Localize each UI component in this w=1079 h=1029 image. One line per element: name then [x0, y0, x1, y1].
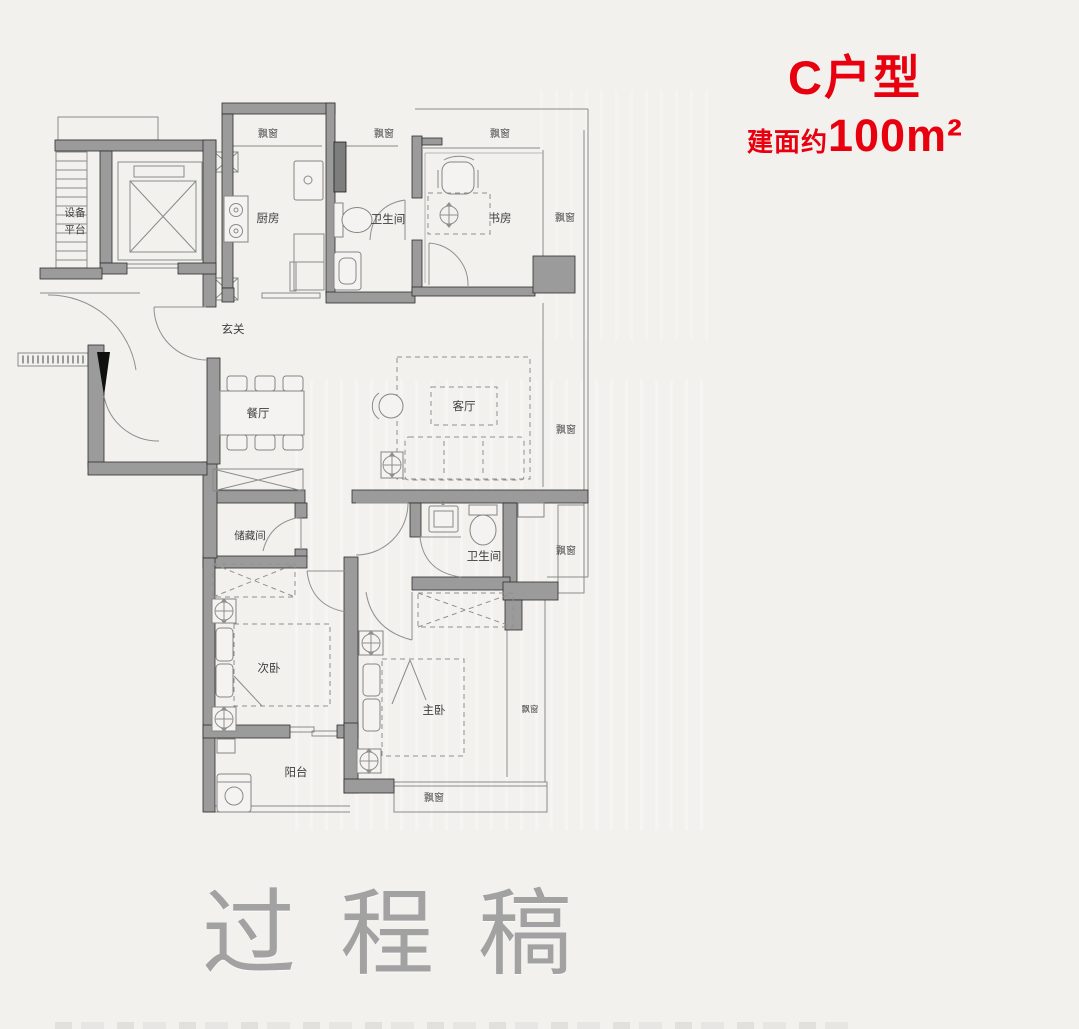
- bathroom-bottom-fixtures: [429, 502, 497, 546]
- bay-window-label: 飘窗: [374, 127, 394, 140]
- hallway-door-swing: [356, 503, 408, 555]
- storage-door-swing: [263, 517, 301, 551]
- room-label-dining: 餐厅: [247, 406, 270, 420]
- bay-window-label: 飘窗: [521, 704, 538, 714]
- area-value: 100m²: [828, 110, 963, 162]
- entry-door-swing: [104, 396, 159, 441]
- bay-window-label: 飘窗: [556, 423, 576, 436]
- area-line: 建面约100m²: [690, 110, 1020, 162]
- room-label-equipment-line1: 设备: [65, 206, 86, 219]
- room-label-kitchen: 厨房: [257, 212, 280, 225]
- draft-watermark: 过程稿: [202, 858, 616, 994]
- study-door-swing: [429, 243, 468, 286]
- bathroom-bottom-door-swing: [420, 537, 461, 577]
- room-label-bathroom-bottom: 卫生间: [467, 549, 502, 563]
- bay-window-labels: 飘窗 飘窗 飘窗 飘窗 飘窗 飘窗 飘窗 飘窗: [258, 127, 576, 804]
- cropped-bottom-text: [55, 1022, 855, 1029]
- study-furniture: [428, 156, 490, 234]
- room-label-study: 书房: [489, 212, 512, 225]
- room-label-storage: 储藏间: [234, 529, 266, 542]
- master-bedroom-furniture: [357, 630, 464, 774]
- bay-window-label: 飘窗: [556, 544, 576, 557]
- room-label-balcony: 阳台: [285, 765, 308, 779]
- room-label-equipment-line2: 平台: [65, 223, 86, 236]
- bay-window-label: 飘窗: [258, 127, 278, 140]
- area-label: 建面约: [747, 122, 828, 159]
- bathroom-top-fixtures: [334, 203, 372, 290]
- room-label-master-bedroom: 主卧: [423, 704, 446, 717]
- unit-title: C户型: [690, 52, 1020, 104]
- secondary-bedroom-door-swing: [307, 571, 346, 612]
- floorplan-page: 设备 平台 厨房 卫生间 书房 玄关 餐厅 客厅 储藏间 卫生间 次卧 主卧 阳…: [0, 0, 1079, 1029]
- room-label-secondary-bedroom: 次卧: [258, 661, 281, 675]
- room-label-living: 客厅: [453, 399, 476, 413]
- title-block: C户型 建面约100m²: [690, 52, 1020, 162]
- furniture: [212, 156, 530, 812]
- living-furniture: [372, 357, 530, 480]
- hall-door-swing: [154, 307, 207, 360]
- kitchen-fixtures: [224, 161, 324, 290]
- room-label-bathroom-top: 卫生间: [371, 212, 406, 226]
- bay-window-label: 飘窗: [424, 791, 444, 804]
- room-label-entry: 玄关: [222, 322, 245, 336]
- balcony-fixtures: [217, 739, 251, 812]
- bay-window-label: 飘窗: [490, 127, 510, 140]
- bay-window-label: 飘窗: [555, 211, 575, 224]
